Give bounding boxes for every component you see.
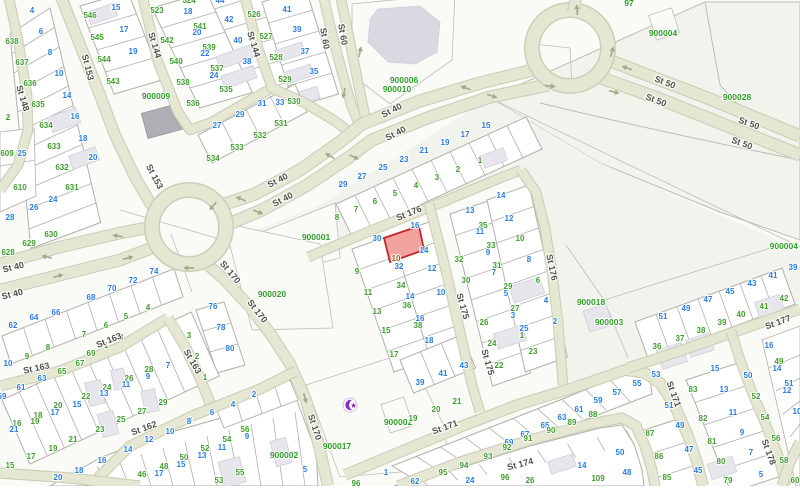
svg-text:16: 16 [765,341,774,350]
svg-text:65: 65 [58,367,67,376]
svg-text:6: 6 [536,276,541,285]
svg-text:26: 26 [30,203,39,212]
svg-text:38: 38 [697,326,706,335]
svg-text:17: 17 [27,452,36,461]
svg-text:9: 9 [740,428,745,437]
svg-text:26: 26 [480,318,489,327]
svg-text:10: 10 [166,427,175,436]
svg-text:32: 32 [395,262,404,271]
svg-text:2: 2 [456,165,461,174]
svg-text:540: 540 [169,57,183,66]
svg-text:530: 530 [287,97,301,106]
svg-text:900020: 900020 [258,289,287,299]
svg-text:96: 96 [501,473,510,482]
svg-text:6: 6 [39,27,44,36]
svg-text:22: 22 [82,392,91,401]
svg-text:4: 4 [30,6,35,15]
svg-text:41: 41 [769,271,778,280]
svg-text:32: 32 [455,255,464,264]
svg-text:26: 26 [526,476,535,485]
svg-text:40: 40 [234,36,243,45]
svg-text:4: 4 [146,303,151,312]
svg-text:30: 30 [462,276,471,285]
svg-text:3: 3 [187,331,192,340]
svg-text:7: 7 [354,205,359,214]
svg-text:14: 14 [578,461,587,470]
svg-text:6: 6 [104,321,109,330]
svg-text:546: 546 [83,11,97,20]
svg-text:9: 9 [146,372,151,381]
svg-text:49: 49 [676,421,685,430]
svg-text:632: 632 [55,163,69,172]
svg-text:23: 23 [400,155,409,164]
svg-text:47: 47 [685,445,694,454]
svg-text:900004: 900004 [770,241,799,251]
svg-text:13: 13 [373,307,382,316]
svg-text:51: 51 [659,312,668,321]
svg-text:9: 9 [25,352,30,361]
svg-text:17: 17 [155,469,164,478]
svg-text:15: 15 [382,326,391,335]
svg-text:43: 43 [748,279,757,288]
svg-text:19: 19 [31,417,40,426]
svg-text:36: 36 [403,301,412,310]
svg-text:18: 18 [184,7,193,16]
svg-text:10: 10 [793,407,800,416]
svg-text:8: 8 [48,48,53,57]
svg-text:1: 1 [478,156,483,165]
svg-text:37: 37 [676,334,685,343]
svg-text:14: 14 [63,91,72,100]
svg-text:22: 22 [201,49,210,58]
svg-text:89: 89 [568,418,577,427]
svg-text:42: 42 [780,294,789,303]
svg-text:85: 85 [663,473,672,482]
svg-text:2: 2 [252,390,257,399]
svg-text:19: 19 [49,444,58,453]
svg-text:33: 33 [276,98,285,107]
svg-text:17: 17 [390,350,399,359]
svg-text:4: 4 [544,296,549,305]
svg-text:88: 88 [589,410,598,419]
svg-text:24: 24 [466,476,475,485]
svg-text:91: 91 [524,434,533,443]
svg-text:12: 12 [145,435,154,444]
svg-text:17: 17 [51,408,60,417]
svg-text:13: 13 [720,385,729,394]
svg-text:64: 64 [30,313,39,322]
svg-text:36: 36 [653,342,662,351]
svg-text:18: 18 [75,466,84,475]
svg-text:94: 94 [460,461,469,470]
svg-text:9: 9 [486,248,491,257]
svg-text:53: 53 [652,370,661,379]
svg-text:11: 11 [476,227,485,236]
svg-text:39: 39 [789,263,798,272]
svg-text:61: 61 [575,405,584,414]
svg-text:41: 41 [760,302,769,311]
svg-text:900009: 900009 [142,91,171,101]
svg-text:20: 20 [54,473,63,482]
svg-text:49: 49 [682,304,691,313]
svg-text:533: 533 [230,143,244,152]
svg-text:633: 633 [47,142,61,151]
svg-text:52: 52 [752,392,761,401]
svg-text:54: 54 [761,413,770,422]
svg-text:83: 83 [689,385,698,394]
svg-text:58: 58 [780,456,789,465]
svg-text:529: 529 [278,75,292,84]
svg-text:14: 14 [773,364,782,373]
svg-text:17: 17 [120,25,129,34]
svg-text:900017: 900017 [323,441,352,451]
svg-text:900010: 900010 [383,84,412,94]
svg-text:11: 11 [218,443,227,452]
svg-text:5: 5 [393,189,398,198]
svg-text:38: 38 [414,321,423,330]
svg-text:78: 78 [217,323,226,332]
svg-text:25: 25 [18,149,27,158]
svg-text:11: 11 [364,288,373,297]
svg-text:39: 39 [416,378,425,387]
svg-text:92: 92 [503,443,512,452]
svg-text:48: 48 [623,468,632,477]
svg-text:3: 3 [511,311,516,320]
svg-text:900003: 900003 [595,317,624,327]
svg-text:53: 53 [215,476,224,485]
svg-text:6: 6 [210,408,215,417]
svg-text:46: 46 [138,470,147,479]
svg-text:7: 7 [82,330,87,339]
svg-text:27: 27 [138,407,147,416]
svg-text:538: 538 [176,78,190,87]
svg-text:74: 74 [150,267,159,276]
svg-text:638: 638 [5,37,19,46]
svg-text:69: 69 [87,349,96,358]
svg-text:900028: 900028 [723,92,752,102]
svg-text:15: 15 [482,121,491,130]
svg-text:528: 528 [269,53,283,62]
svg-text:86: 86 [655,452,664,461]
svg-text:19: 19 [409,414,418,423]
svg-text:63: 63 [558,413,567,422]
svg-text:20: 20 [193,28,202,37]
svg-text:8: 8 [46,343,51,352]
svg-text:14: 14 [420,246,429,255]
svg-text:76: 76 [209,302,218,311]
svg-text:900002: 900002 [270,450,299,460]
svg-text:16: 16 [411,221,420,230]
svg-text:30: 30 [373,234,382,243]
svg-text:629: 629 [22,239,36,248]
svg-text:39: 39 [293,25,302,34]
svg-text:35: 35 [310,67,319,76]
svg-text:637: 637 [15,58,29,67]
svg-text:7: 7 [749,448,754,457]
svg-text:39: 39 [718,318,727,327]
svg-text:63: 63 [38,374,47,383]
svg-text:90: 90 [547,426,556,435]
svg-text:43: 43 [460,361,469,370]
svg-text:29: 29 [236,110,245,119]
svg-text:55: 55 [236,468,245,477]
svg-text:87: 87 [646,429,655,438]
svg-text:45: 45 [726,287,735,296]
svg-text:1: 1 [384,468,389,477]
svg-text:8: 8 [187,417,192,426]
svg-text:18: 18 [79,134,88,143]
svg-text:15: 15 [112,3,121,12]
svg-text:14: 14 [406,292,415,301]
svg-text:18: 18 [425,336,434,345]
svg-text:535: 535 [219,85,233,94]
svg-text:23: 23 [96,425,105,434]
svg-text:24: 24 [210,71,219,80]
svg-text:29: 29 [339,180,348,189]
svg-text:20: 20 [89,153,98,162]
svg-text:20: 20 [432,405,441,414]
svg-text:17: 17 [461,130,470,139]
svg-text:23: 23 [529,347,538,356]
svg-text:8: 8 [527,255,532,264]
svg-text:6: 6 [373,197,378,206]
svg-text:9: 9 [245,432,250,441]
svg-text:41: 41 [283,5,292,14]
svg-text:900004: 900004 [649,28,678,38]
svg-text:21: 21 [10,425,19,434]
svg-text:79: 79 [724,476,733,485]
svg-text:635: 635 [31,100,45,109]
svg-text:67: 67 [76,359,85,368]
svg-text:12: 12 [428,264,437,273]
svg-text:27: 27 [213,121,222,130]
svg-text:109: 109 [591,474,605,483]
svg-text:57: 57 [613,388,622,397]
svg-text:44: 44 [216,0,225,5]
svg-text:80: 80 [226,344,235,353]
svg-text:534: 534 [206,154,220,163]
svg-text:95: 95 [439,468,448,477]
svg-text:610: 610 [13,183,27,192]
svg-text:3: 3 [435,173,440,182]
svg-text:13: 13 [466,206,475,215]
svg-text:50: 50 [616,448,625,457]
svg-text:628: 628 [1,248,15,257]
svg-text:82: 82 [699,414,708,423]
svg-text:21: 21 [420,146,429,155]
svg-text:15: 15 [73,400,82,409]
svg-text:19: 19 [441,138,450,147]
svg-text:2: 2 [6,113,11,122]
svg-text:25: 25 [379,163,388,172]
svg-text:41: 41 [439,369,448,378]
svg-text:42: 42 [225,15,234,24]
svg-text:9: 9 [355,267,360,276]
svg-text:609: 609 [0,149,14,158]
svg-text:72: 72 [129,276,138,285]
svg-text:21: 21 [69,435,78,444]
svg-text:25: 25 [117,415,126,424]
svg-text:68: 68 [87,293,96,302]
svg-text:11: 11 [729,408,738,417]
svg-text:542: 542 [160,36,174,45]
svg-text:37: 37 [301,47,310,56]
svg-text:12: 12 [783,386,792,395]
svg-text:2: 2 [553,317,558,326]
svg-text:4: 4 [414,181,419,190]
svg-text:543: 543 [106,77,120,86]
svg-text:545: 545 [90,33,104,42]
svg-text:527: 527 [259,32,273,41]
svg-text:13: 13 [100,389,109,398]
svg-text:24: 24 [49,195,58,204]
svg-text:15: 15 [177,460,186,469]
svg-text:5: 5 [124,312,129,321]
svg-text:55: 55 [633,379,642,388]
svg-text:62: 62 [411,477,420,486]
svg-text:10: 10 [437,288,446,297]
svg-text:47: 47 [704,295,713,304]
svg-text:24: 24 [488,339,497,348]
svg-text:8: 8 [335,213,340,222]
svg-text:59: 59 [0,392,7,401]
svg-text:526: 526 [247,10,261,19]
svg-text:1: 1 [203,373,208,382]
svg-text:96: 96 [352,479,361,486]
svg-text:60: 60 [791,476,800,485]
svg-text:7: 7 [166,361,171,370]
svg-text:12: 12 [505,214,514,223]
svg-text:29: 29 [159,398,168,407]
svg-text:62: 62 [9,321,18,330]
svg-text:21: 21 [453,397,462,406]
svg-text:16: 16 [71,112,80,121]
svg-text:56: 56 [772,434,781,443]
svg-text:14: 14 [124,445,133,454]
svg-text:38: 38 [243,57,252,66]
svg-text:630: 630 [44,230,58,239]
svg-text:70: 70 [108,284,117,293]
svg-text:13: 13 [198,451,207,460]
svg-text:14: 14 [497,191,506,200]
svg-text:524: 524 [182,0,196,5]
svg-text:93: 93 [484,452,493,461]
svg-text:5: 5 [759,470,764,479]
svg-text:45: 45 [694,466,703,475]
svg-text:81: 81 [708,437,717,446]
svg-text:5: 5 [504,289,509,298]
svg-text:19: 19 [129,47,138,56]
svg-text:531: 531 [274,119,288,128]
svg-text:532: 532 [253,131,267,140]
svg-text:10: 10 [516,234,525,243]
svg-text:634: 634 [39,121,53,130]
svg-text:31: 31 [258,99,267,108]
svg-text:15: 15 [711,364,720,373]
svg-text:15: 15 [6,461,15,470]
svg-text:900001: 900001 [302,232,331,242]
svg-text:523: 523 [150,6,164,15]
svg-text:4: 4 [231,400,236,409]
svg-text:28: 28 [6,213,15,222]
svg-text:27: 27 [358,172,367,181]
svg-text:40: 40 [737,310,746,319]
svg-text:631: 631 [65,183,79,192]
svg-text:900018: 900018 [577,297,606,307]
svg-text:59: 59 [594,396,603,405]
svg-text:66: 66 [52,308,61,317]
svg-text:1: 1 [520,331,525,340]
svg-text:11: 11 [122,380,131,389]
svg-text:544: 544 [97,55,111,64]
svg-text:10: 10 [4,359,13,368]
svg-text:50: 50 [744,371,753,380]
svg-text:7: 7 [492,268,497,277]
svg-text:97: 97 [624,0,634,8]
svg-text:5: 5 [303,465,308,474]
svg-text:16: 16 [98,456,107,465]
svg-text:80: 80 [717,457,726,466]
svg-text:61: 61 [17,383,26,392]
svg-text:10: 10 [55,69,64,78]
svg-text:536: 536 [186,99,200,108]
svg-text:34: 34 [397,281,406,290]
